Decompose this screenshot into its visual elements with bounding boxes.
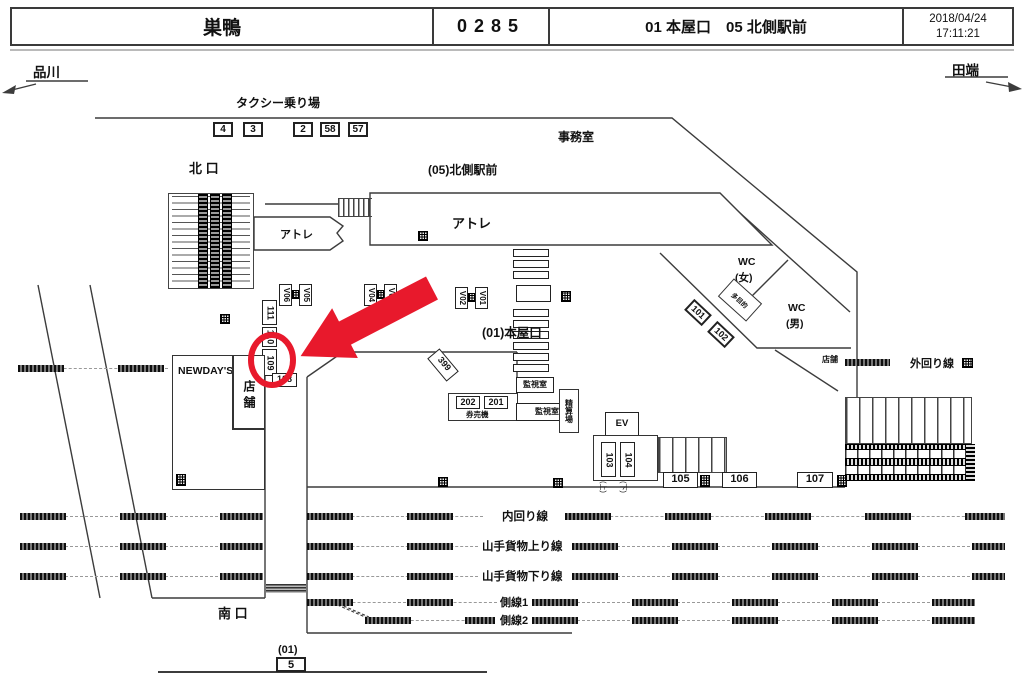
stair-bar (513, 271, 549, 279)
direction-tabata: 田端 (952, 59, 979, 79)
north-exit-stairs (168, 193, 254, 289)
hatch-band (845, 444, 975, 450)
direction-arrowheads (2, 82, 1022, 94)
camera-box-111[interactable]: 111 (262, 300, 277, 325)
stair-bar (513, 353, 549, 361)
fare-adjust-room: 精算場 (559, 389, 579, 433)
camera-box-v05[interactable]: V05 (299, 284, 312, 306)
camera-box-110[interactable]: 110 (262, 327, 277, 347)
camera-box-4[interactable]: 4 (213, 122, 233, 137)
track-inner-loop (565, 513, 1005, 520)
label-siding2: 側線2 (500, 612, 528, 628)
camera-box-v03[interactable]: V03 (384, 284, 397, 306)
station-floorplan: 巣鴨 0285 01 本屋口 05 北側駅前 2018/04/24 17:11:… (0, 0, 1024, 681)
track-siding1 (307, 599, 497, 606)
camera-103-104-block: 103 104 (593, 435, 658, 481)
hatch-marker (553, 478, 563, 488)
camera-box-103[interactable]: 103 (601, 442, 616, 477)
gate-info-text: 01 本屋口 05 北側駅前 (645, 16, 807, 37)
time-text: 17:11:21 (936, 27, 980, 42)
label-wc-men-1: WC (788, 302, 806, 314)
label-outer-loop: 外回り線 (910, 355, 954, 371)
camera-box-107[interactable]: 107 (797, 472, 833, 488)
hatch-marker (438, 477, 448, 487)
escalator-band (198, 194, 208, 288)
label-wc-men-2: (男) (786, 316, 804, 331)
track-inner-loop (307, 513, 483, 520)
label-freight-up: 山手貨物上り線 (482, 538, 563, 554)
hatch-band (845, 474, 975, 481)
track-inner-loop (20, 513, 263, 520)
label-up: (上) (598, 481, 608, 493)
label-inner-loop: 内回り線 (502, 508, 548, 524)
ticket-machine-block: 202 201 券売機 (448, 393, 518, 421)
camera-box-57[interactable]: 57 (348, 122, 368, 137)
track-freight-up (307, 543, 478, 550)
label-taxi-stand: タクシー乗り場 (236, 94, 320, 111)
camera-box-3[interactable]: 3 (243, 122, 263, 137)
connector-passage (338, 198, 372, 217)
direction-shinagawa: 品川 (33, 61, 60, 81)
stair-bar (513, 342, 549, 350)
label-wc-women-1: WC (738, 256, 756, 268)
track-siding2 (365, 617, 495, 624)
station-name: 巣鴨 (203, 13, 241, 40)
date-text: 2018/04/24 (929, 12, 987, 27)
hatch-marker (292, 290, 299, 299)
track-freight-down (307, 573, 478, 580)
label-siding1: 側線1 (500, 594, 528, 610)
hatch-marker (220, 314, 230, 324)
label-north-front: (05)北側駅前 (428, 161, 497, 178)
label-newdays: NEWDAY'S (178, 365, 233, 377)
label-main-gate: (01)本屋口 (482, 322, 542, 341)
divider (232, 428, 265, 430)
stair-bar (513, 260, 549, 268)
label-ticket-machines: 券売機 (466, 409, 489, 420)
camera-box-v01[interactable]: V01 (475, 287, 488, 309)
label-shop-vertical: 店舗 (241, 380, 258, 412)
newdays-block: NEWDAY'S 店舗 (172, 355, 265, 490)
header-gate-info: 01 本屋口 05 北側駅前 (548, 9, 902, 44)
camera-box-105[interactable]: 105 (663, 472, 698, 488)
label-south-exit: 南 口 (218, 603, 248, 622)
hatch-marker (700, 475, 710, 487)
label-south-area: (01) (278, 644, 298, 656)
platform-stairs-east-lower (845, 444, 975, 481)
track-outer-loop-west (18, 365, 168, 372)
track-freight-up (20, 543, 263, 550)
divider (232, 356, 234, 429)
camera-box-202[interactable]: 202 (456, 396, 480, 409)
camera-box-v06[interactable]: V06 (279, 284, 292, 306)
hatch-band (845, 458, 975, 466)
track-siding1 (532, 599, 975, 606)
camera-box-5[interactable]: 5 (276, 657, 306, 672)
header-station: 巣鴨 (12, 9, 432, 44)
label-shop-right: 店舗 (822, 354, 838, 365)
hatch-marker (176, 474, 186, 486)
camera-box-2[interactable]: 2 (293, 122, 313, 137)
track-freight-down (572, 573, 1005, 580)
label-atre-small: アトレ (280, 226, 313, 242)
hatch-marker (561, 291, 571, 302)
label-down: (下) (618, 481, 628, 493)
track-outer-loop-east (845, 359, 890, 366)
hatch-column (966, 444, 975, 481)
label-atre-large: アトレ (452, 213, 491, 232)
camera-box-108[interactable]: 108 (272, 373, 297, 387)
platform-stairs-center (658, 437, 727, 473)
stair-bar (513, 364, 549, 372)
stair-landing (516, 285, 551, 302)
stair-bar (513, 249, 549, 257)
camera-box-106[interactable]: 106 (722, 472, 757, 488)
monitor-room-upper: 監視室 (516, 377, 554, 393)
camera-box-58[interactable]: 58 (320, 122, 340, 137)
camera-box-201[interactable]: 201 (484, 396, 508, 409)
header-code: 0285 (432, 9, 548, 44)
camera-code: 0285 (457, 16, 525, 37)
hatch-marker (377, 290, 384, 299)
label-office: 事務室 (558, 128, 594, 145)
elevator-box: EV (605, 412, 639, 436)
camera-box-104[interactable]: 104 (620, 442, 635, 477)
label-north-exit: 北 口 (189, 158, 219, 177)
south-gate-band (266, 584, 306, 593)
track-freight-down (20, 573, 263, 580)
hatch-marker (962, 358, 973, 368)
hatch-marker (418, 231, 428, 241)
camera-box-v02[interactable]: V02 (455, 287, 468, 309)
header-bar: 巣鴨 0285 01 本屋口 05 北側駅前 2018/04/24 17:11:… (10, 7, 1014, 46)
platform-stairs-east-upper (845, 397, 972, 444)
escalator-band (210, 194, 220, 288)
escalator-band (222, 194, 232, 288)
track-siding2 (532, 617, 975, 624)
track-freight-up (572, 543, 1005, 550)
header-datetime: 2018/04/24 17:11:21 (902, 9, 1012, 44)
stair-bar (513, 309, 549, 317)
camera-box-v04[interactable]: V04 (364, 284, 377, 306)
label-freight-down: 山手貨物下り線 (482, 568, 563, 584)
hatch-marker (468, 293, 475, 302)
